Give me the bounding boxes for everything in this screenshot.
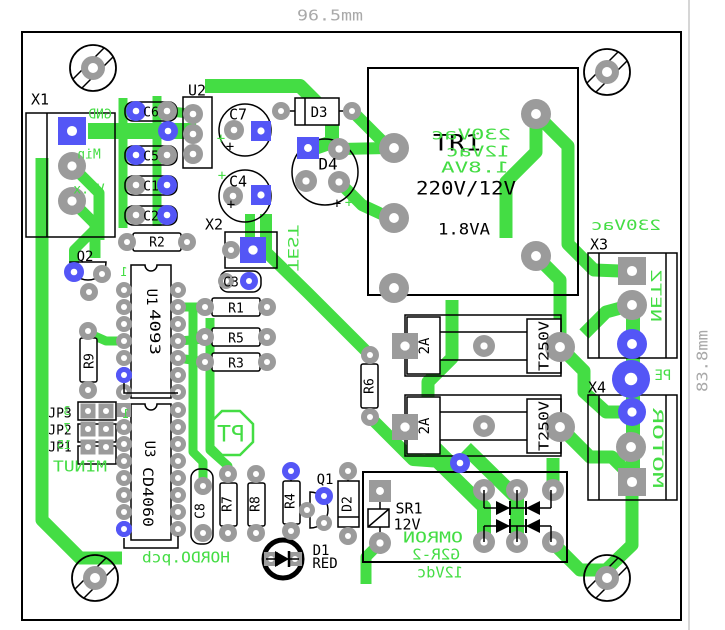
pad-hole [531, 251, 541, 261]
pad-hole [555, 422, 565, 432]
pad-hole [345, 468, 351, 474]
refdes-d2: D2 [341, 496, 356, 512]
refdes-d4: D4 [318, 155, 337, 174]
c4-polarity-plus: + [227, 197, 235, 213]
pad-hole [304, 144, 312, 152]
pad-hole [175, 407, 181, 413]
diode-triangle-icon [526, 501, 540, 515]
pad-hole [121, 372, 127, 378]
refdes-c8: C8 [194, 503, 209, 519]
refdes-r7: R7 [221, 496, 236, 512]
pad-hole [626, 442, 636, 452]
pad-hole [231, 127, 238, 134]
pad-hole [175, 355, 181, 361]
pcb-board-graphic: X1U2C6C5C1C2C7C4D3D4X2TR1220V/12V1.8VAR2… [0, 0, 725, 630]
pad-hole [248, 245, 257, 254]
pad-hole [175, 304, 181, 310]
refdes-r2: R2 [149, 236, 165, 251]
pcb-layout-view: X1U2C6C5C1C2C7C4D3D4X2TR1220V/12V1.8VAR2… [0, 0, 725, 630]
pad-hole [175, 424, 181, 430]
pad-hole [264, 334, 270, 340]
pad-hole [345, 533, 351, 539]
pad-hole [103, 426, 109, 432]
x1-pin-gnd: GND [88, 108, 112, 123]
pad-hole [288, 468, 294, 474]
mounting-hole-drill [90, 573, 100, 583]
copper-trace [266, 214, 370, 355]
refdes-c2: C2 [143, 210, 159, 225]
pad-hole [278, 108, 284, 114]
minut-label: MINUT [53, 457, 107, 475]
pad-hole [625, 373, 638, 386]
pad-hole [264, 359, 270, 365]
fuse2-rating: 2A [417, 417, 433, 434]
refdes-c7: C7 [229, 105, 247, 123]
pad-hole [164, 152, 171, 159]
pad-hole [121, 526, 127, 532]
mounting-hole-drill [88, 63, 98, 73]
pad-hole [321, 520, 327, 526]
pad-hole [164, 182, 171, 189]
test-label: TEST [284, 224, 300, 271]
pad-hole [175, 509, 181, 515]
d4-plus-green: + [345, 195, 353, 211]
pad-hole [555, 342, 565, 352]
refdes-r3: R3 [228, 357, 244, 372]
pad-hole [202, 334, 208, 340]
x1-pin-vox: Vo.x [73, 183, 104, 198]
pad-hole [389, 143, 399, 153]
pad-hole [627, 339, 637, 349]
u1-pin1-marker: 1 [120, 265, 127, 279]
pad-hole [480, 422, 487, 429]
refdes-c1: C1 [143, 180, 159, 195]
pad-hole [121, 509, 127, 515]
pad-hole [627, 300, 637, 310]
c7-polarity-plus: + [226, 139, 234, 155]
pad-hole [531, 109, 541, 119]
pad-hole [99, 271, 105, 277]
pad-hole [121, 424, 127, 430]
pad-hole [321, 493, 327, 499]
pad-hole [175, 458, 181, 464]
refdes-r6: R6 [363, 378, 378, 394]
pad-hole [121, 304, 127, 310]
pad-hole [202, 359, 208, 365]
x1-pin-min: Min [77, 148, 100, 163]
pad-hole [257, 191, 264, 198]
refdes-c5: C5 [143, 150, 159, 165]
tr1-primary-voltage: 230Vac [431, 125, 511, 143]
pad-hole [121, 338, 127, 344]
jp3-pin-number: 3 [63, 404, 70, 418]
c7-plus-green: + [217, 131, 225, 147]
board-name: HORDO.pcb [142, 548, 230, 566]
u1-value: 4093 [146, 309, 162, 355]
refdes-c6: C6 [143, 106, 159, 121]
pad-hole [200, 483, 206, 489]
refdes-r8: R8 [249, 496, 264, 512]
refdes-u3: U3 [141, 441, 157, 458]
fuse1-voltage: T250V [538, 321, 553, 371]
pad-hole [184, 239, 190, 245]
pad-hole [304, 507, 310, 513]
refdes-u2: U2 [188, 81, 206, 99]
pad-hole [175, 321, 181, 327]
fuse1-rating: 2A [417, 337, 433, 354]
pad-hole [103, 444, 109, 450]
pad-hole [367, 352, 373, 358]
pad-hole [627, 266, 637, 276]
pad-hole [202, 304, 208, 310]
diode-triangle-icon [526, 519, 540, 533]
u3-pin1-marker: 1 [122, 407, 129, 421]
pad-hole [302, 177, 309, 184]
pad-hole [246, 278, 252, 284]
pad-hole [133, 152, 140, 159]
pad-hole [85, 387, 91, 393]
pe-label: PE [655, 368, 672, 384]
pad-hole [457, 460, 464, 467]
pad-hole [228, 247, 234, 253]
refdes-u1: U1 [143, 289, 159, 306]
pad-hole [164, 108, 171, 115]
pad-hole [133, 108, 140, 115]
pad-hole [124, 239, 130, 245]
pad-hole [225, 530, 231, 536]
relay-model: G2R-2 [412, 545, 460, 563]
pad-hole [225, 471, 231, 477]
pt-logo-text: PT [217, 423, 245, 448]
pad-hole [133, 182, 140, 189]
pad-hole [121, 321, 127, 327]
refdes-r9: R9 [83, 353, 98, 369]
d1-color: RED [312, 556, 337, 572]
relay-coil-voltage: 12Vdc [417, 563, 463, 581]
pad-hole [175, 372, 181, 378]
refdes-d3: D3 [311, 105, 328, 121]
refdes-r4: R4 [284, 493, 299, 509]
pad-hole [175, 492, 181, 498]
c4-plus-green: + [218, 168, 226, 184]
pad-hole [67, 161, 76, 170]
pad-hole [253, 530, 259, 536]
pad-hole [103, 408, 109, 414]
detail-polyline [124, 536, 178, 548]
pad-hole [190, 131, 197, 138]
diode-triangle-icon [496, 519, 510, 533]
led-triangle-icon [275, 551, 289, 567]
u3-value: CD4060 [139, 467, 155, 527]
detail-polyline [124, 383, 178, 393]
pad-hole [133, 212, 140, 219]
pad-hole [335, 178, 342, 185]
pad-hole [175, 441, 181, 447]
pad-hole [400, 422, 409, 431]
pad-hole [175, 287, 181, 293]
pad-hole [164, 212, 171, 219]
diode-triangle-icon [496, 501, 510, 515]
pad-hole [85, 444, 91, 450]
jp1-pin-number: 15 [57, 438, 71, 452]
pad-hole [389, 283, 399, 293]
refdes-x3: X3 [590, 235, 608, 253]
refdes-c4: C4 [229, 172, 247, 190]
pad-hole [121, 441, 127, 447]
tr1-va-green: 1.8VA [441, 158, 509, 176]
mounting-hole-drill [602, 67, 612, 77]
pad-hole [175, 526, 181, 532]
pad-hole [175, 389, 181, 395]
pad-hole [121, 458, 127, 464]
refdes-x4: X4 [588, 378, 606, 396]
dim-width: 96.5mm [297, 6, 363, 24]
refdes-x2: X2 [205, 215, 223, 233]
x3-net: NETZ [647, 270, 663, 322]
fuse2-voltage: T250V [538, 401, 553, 451]
dim-height: 83.8mm [693, 330, 711, 392]
refdes-q2: Q2 [77, 249, 94, 265]
pad-hole [71, 269, 78, 276]
pad-hole [400, 341, 409, 350]
pad-hole [376, 539, 383, 546]
pad-hole [86, 289, 92, 295]
tr1-power: 1.8VA [438, 220, 490, 239]
pad-hole [349, 108, 355, 114]
pad-hole [121, 492, 127, 498]
pad-hole [257, 127, 264, 134]
pad-hole [335, 145, 342, 152]
pad-hole [200, 530, 206, 536]
pad-hole [367, 414, 373, 420]
refdes-c3: C3 [223, 276, 239, 291]
pad-hole [288, 528, 294, 534]
x3-voltage: 230Vac [591, 218, 661, 234]
refdes-q1: Q1 [317, 472, 334, 488]
refdes-r5: R5 [228, 332, 244, 347]
pad-hole [627, 407, 636, 416]
pad-hole [85, 328, 91, 334]
pad-hole [85, 426, 91, 432]
pad-hole [175, 475, 181, 481]
jp2-pin-number: 7 [63, 421, 70, 435]
pad-hole [121, 355, 127, 361]
relay-brand: OMRON [403, 528, 463, 546]
pad-hole [165, 128, 172, 135]
pad-hole [627, 477, 637, 487]
pad-hole [480, 342, 487, 349]
pad-hole [376, 487, 384, 495]
refdes-r1: R1 [228, 302, 244, 317]
pad-hole [175, 338, 181, 344]
mounting-hole-drill [602, 573, 612, 583]
pad-hole [121, 287, 127, 293]
d4-polarity-plus: + [333, 196, 341, 212]
refdes-x1: X1 [31, 90, 49, 108]
pad-hole [67, 126, 77, 136]
pad-hole [85, 408, 91, 414]
pad-hole [389, 213, 399, 223]
tr1-ratio: 220V/12V [416, 178, 516, 200]
pad-hole [121, 475, 127, 481]
pad-hole [264, 304, 270, 310]
x4-net: MOTOR [649, 407, 665, 488]
pad-hole [253, 471, 259, 477]
pad-hole [190, 151, 197, 158]
pad-hole [190, 111, 197, 118]
pad-hole [67, 196, 76, 205]
